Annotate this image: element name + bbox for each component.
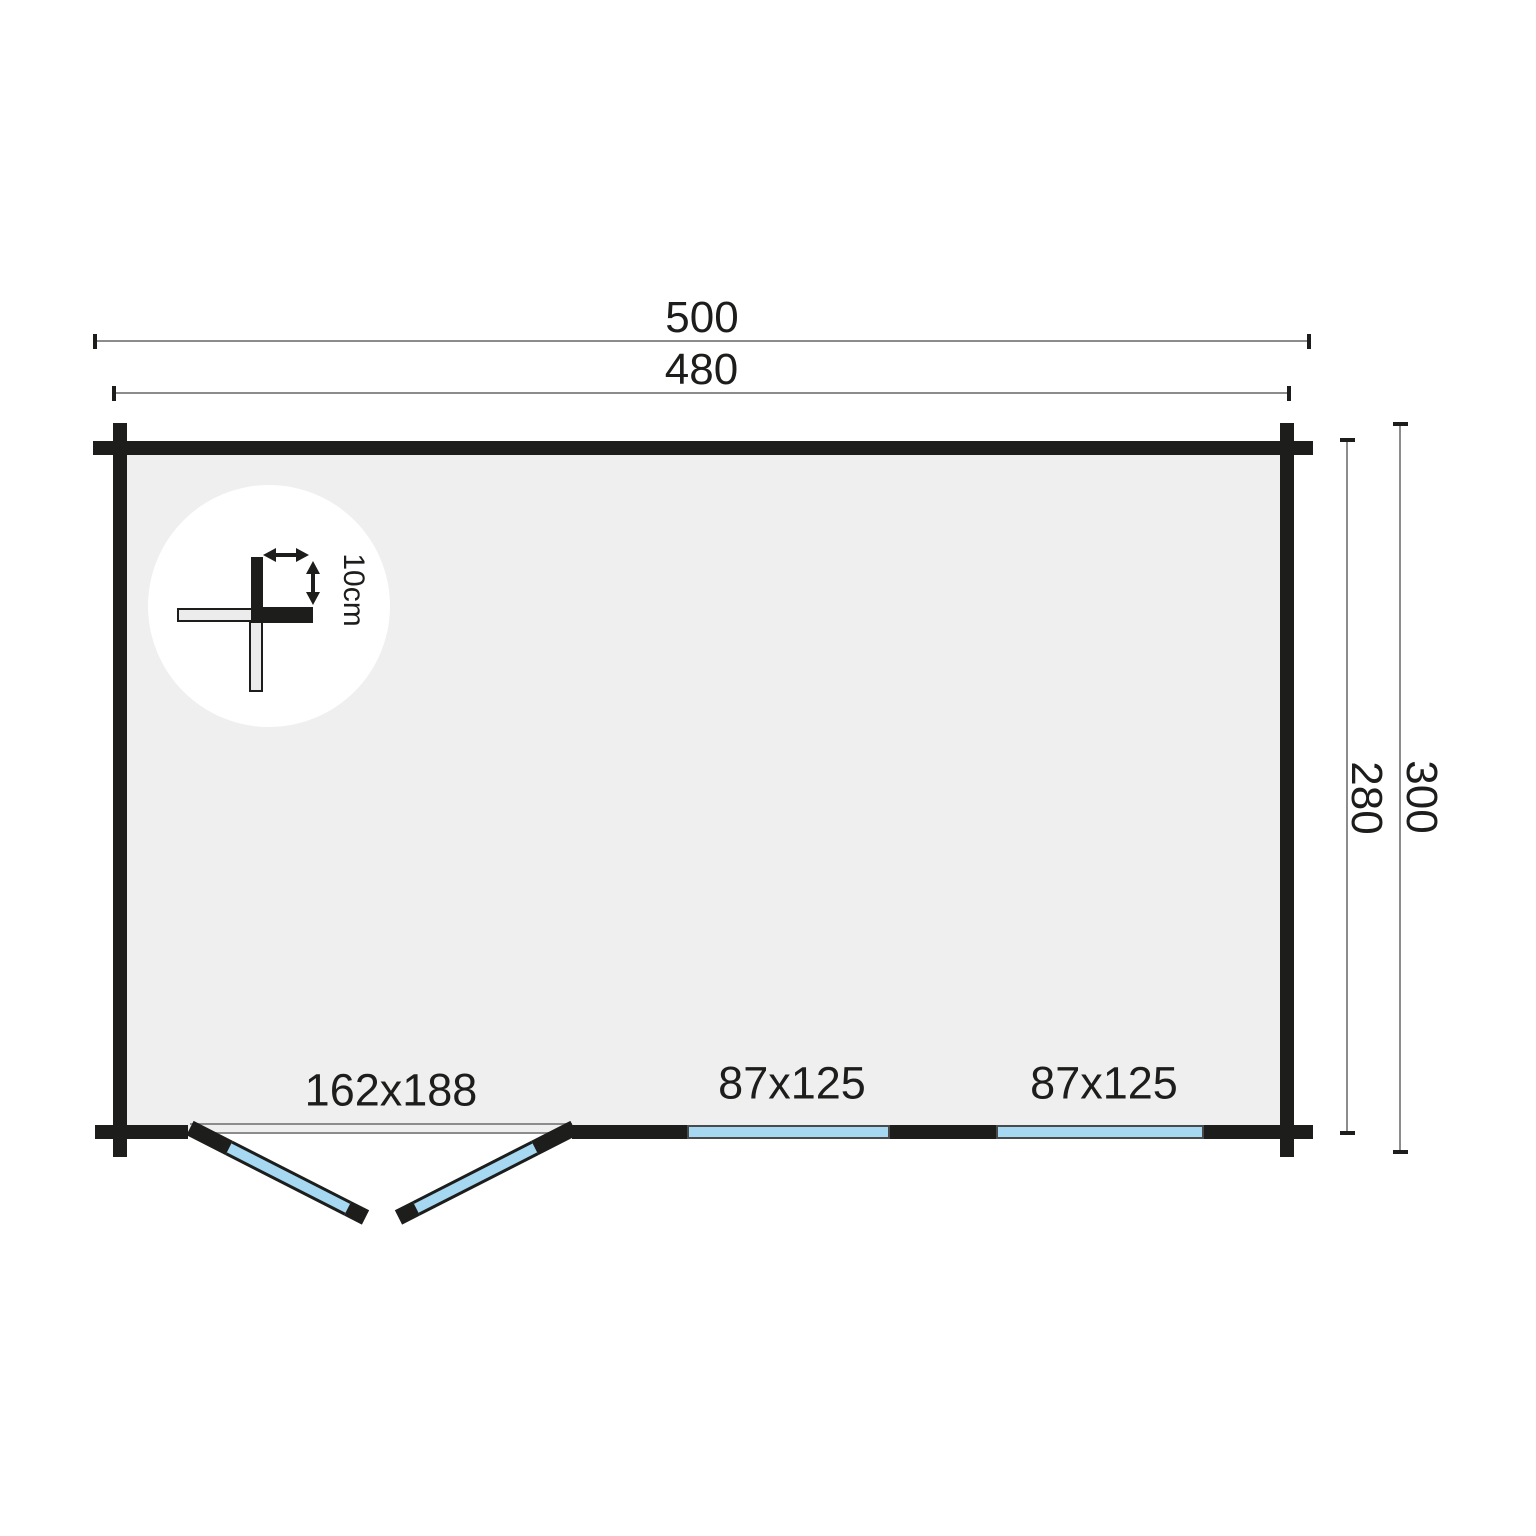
wall-right — [1280, 423, 1294, 1157]
wall-top — [93, 441, 1313, 455]
door-threshold-line — [190, 1123, 572, 1125]
window-2 — [996, 1125, 1204, 1139]
wall-left — [113, 423, 127, 1157]
floor-plan-canvas: 500 480 280 300 162x188 87x125 87x125 — [0, 0, 1536, 1536]
window-1-size-label: 87x125 — [718, 1061, 866, 1106]
door-size-label: 162x188 — [305, 1068, 478, 1113]
wall-bottom-segment — [890, 1125, 996, 1139]
dim-outer-depth-label: 300 — [1399, 760, 1443, 833]
wall-thickness-label: 10cm — [338, 553, 368, 626]
dim-inner-depth-label: 280 — [1344, 761, 1388, 834]
door-glass-panel — [226, 1141, 352, 1216]
door-leaf-left — [186, 1121, 369, 1225]
dim-outer-width-line — [95, 340, 1309, 342]
wall-detail-circle: 10cm — [148, 485, 390, 727]
door-leaf-right — [395, 1121, 578, 1225]
dim-inner-width-label: 480 — [114, 348, 1289, 392]
door-threshold-line — [190, 1132, 572, 1134]
wall-bottom-segment — [95, 1125, 188, 1139]
window-2-size-label: 87x125 — [1030, 1061, 1178, 1106]
wall-bottom-segment — [1204, 1125, 1313, 1139]
dim-outer-width-label: 500 — [95, 296, 1309, 340]
window-1 — [687, 1125, 890, 1139]
wall-bottom-segment — [572, 1125, 687, 1139]
door-glass-panel — [413, 1141, 539, 1216]
dim-inner-width-line — [114, 392, 1289, 394]
